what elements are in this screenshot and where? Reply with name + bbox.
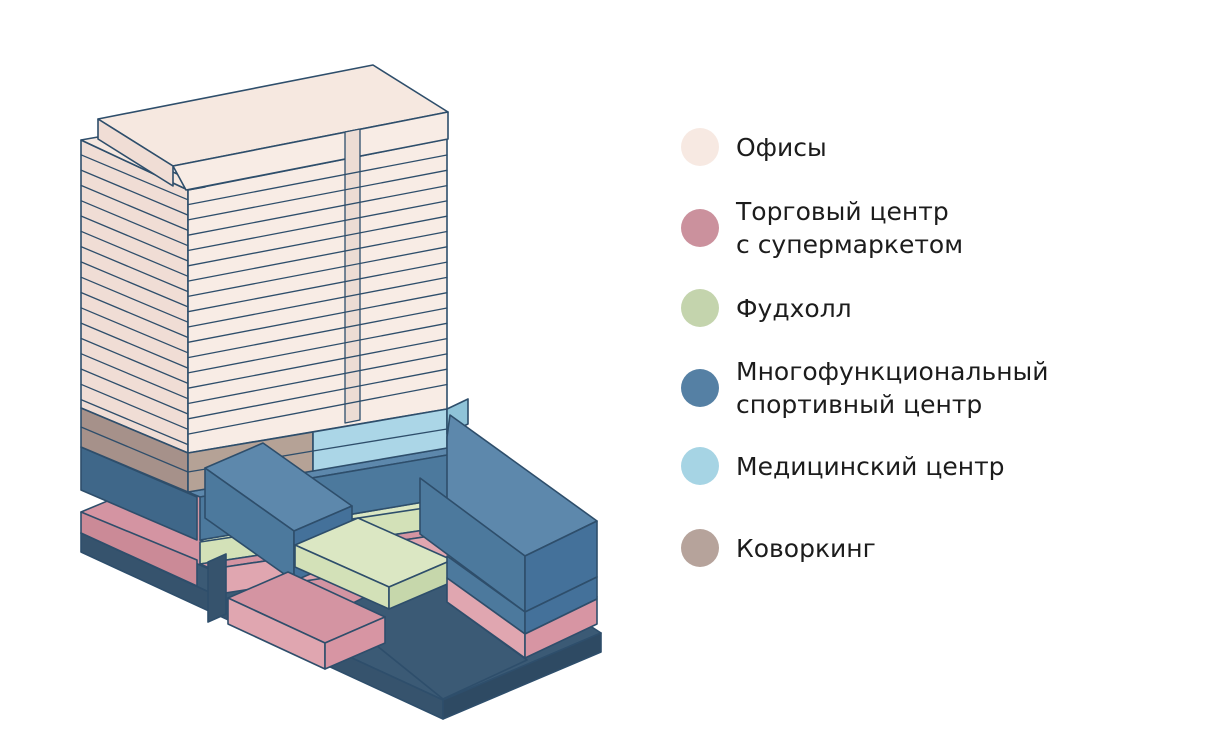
podium-slot	[208, 554, 226, 622]
infographic-building-usage: Офисы Торговый центрс супермаркетом Фудх…	[0, 0, 1214, 755]
tower-front-facade	[188, 139, 447, 453]
isometric-building-diagram	[0, 0, 1214, 755]
